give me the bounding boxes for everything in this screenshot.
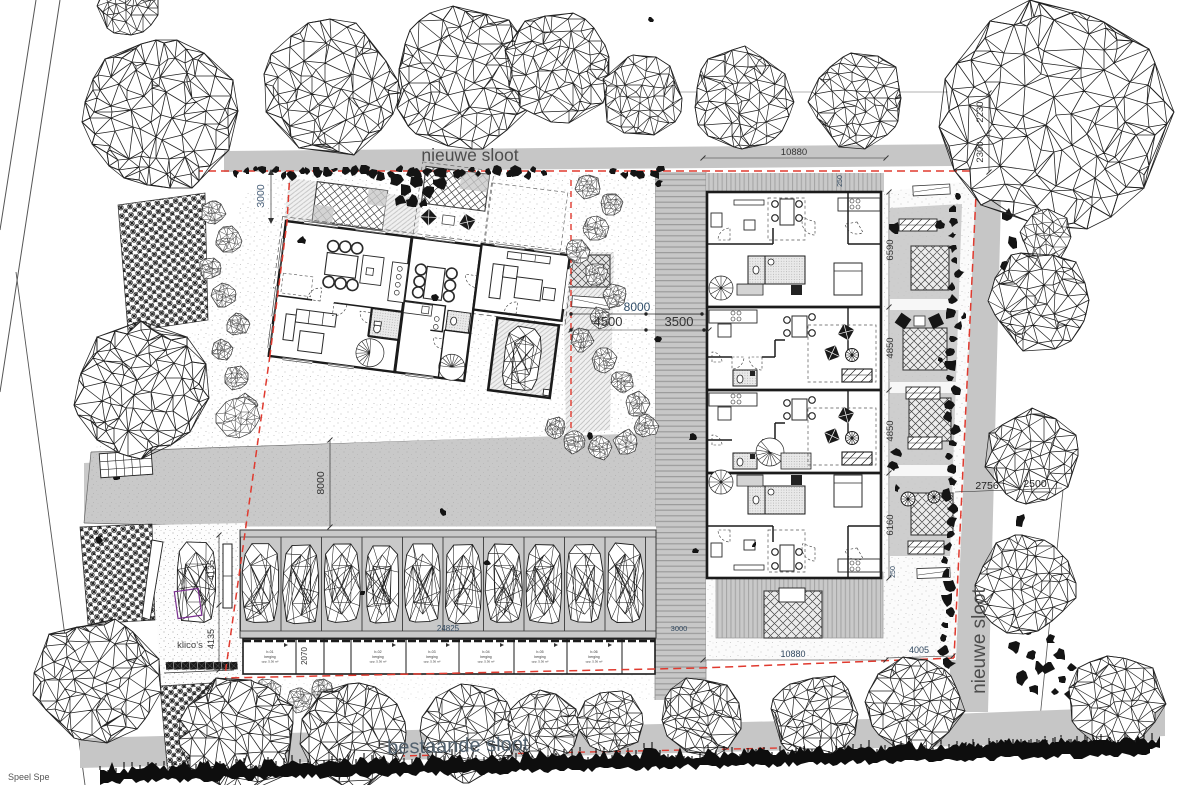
svg-text:24825: 24825 [437, 624, 460, 633]
svg-text:opp. 5.36 m²: opp. 5.36 m² [262, 660, 279, 664]
svg-text:6160: 6160 [885, 514, 896, 535]
svg-text:b-06: b-06 [590, 650, 597, 654]
svg-text:8000: 8000 [624, 300, 651, 314]
svg-text:4135: 4135 [206, 560, 216, 580]
svg-text:klico’s: klico’s [177, 640, 203, 651]
svg-text:2756: 2756 [975, 480, 999, 492]
svg-text:2300: 2300 [975, 141, 986, 162]
svg-text:250: 250 [837, 175, 844, 187]
svg-text:4005: 4005 [909, 645, 929, 655]
svg-text:nieuwe sloot: nieuwe sloot [421, 145, 518, 165]
svg-text:opp. 5.36 m²: opp. 5.36 m² [424, 660, 441, 664]
svg-text:3000: 3000 [255, 184, 267, 208]
svg-text:berging: berging [426, 655, 437, 659]
svg-text:berging: berging [534, 655, 545, 659]
svg-text:b-03: b-03 [428, 650, 435, 654]
svg-text:opp. 5.36 m²: opp. 5.36 m² [370, 660, 387, 664]
svg-text:3000: 3000 [671, 624, 688, 633]
svg-text:b-05: b-05 [536, 650, 543, 654]
svg-text:b-04: b-04 [482, 650, 489, 654]
svg-text:b-01: b-01 [266, 650, 273, 654]
svg-text:opp. 5.36 m²: opp. 5.36 m² [478, 660, 495, 664]
svg-text:4850: 4850 [885, 337, 896, 358]
svg-text:10880: 10880 [781, 147, 807, 158]
svg-text:250: 250 [890, 566, 897, 578]
svg-text:opp. 5.36 m²: opp. 5.36 m² [532, 660, 549, 664]
svg-text:b-02: b-02 [374, 650, 381, 654]
svg-text:4500: 4500 [594, 314, 623, 329]
svg-text:2230: 2230 [975, 101, 986, 122]
svg-text:8000: 8000 [315, 471, 327, 495]
svg-text:2070: 2070 [300, 647, 309, 665]
svg-text:4135: 4135 [206, 629, 216, 649]
svg-text:3500: 3500 [665, 314, 694, 329]
svg-text:bestaande sloot: bestaande sloot [387, 733, 529, 759]
svg-text:opp. 5.36 m²: opp. 5.36 m² [586, 660, 603, 664]
svg-text:berging: berging [264, 655, 275, 659]
svg-text:berging: berging [588, 655, 599, 659]
svg-text:4850: 4850 [885, 420, 896, 441]
svg-text:Speel Spe: Speel Spe [8, 772, 50, 782]
svg-text:6590: 6590 [885, 239, 896, 260]
svg-text:10880: 10880 [780, 649, 805, 659]
svg-text:nieuwe sloot: nieuwe sloot [969, 587, 990, 693]
svg-text:2500: 2500 [1023, 478, 1047, 490]
svg-text:berging: berging [480, 655, 491, 659]
svg-text:berging: berging [372, 655, 383, 659]
